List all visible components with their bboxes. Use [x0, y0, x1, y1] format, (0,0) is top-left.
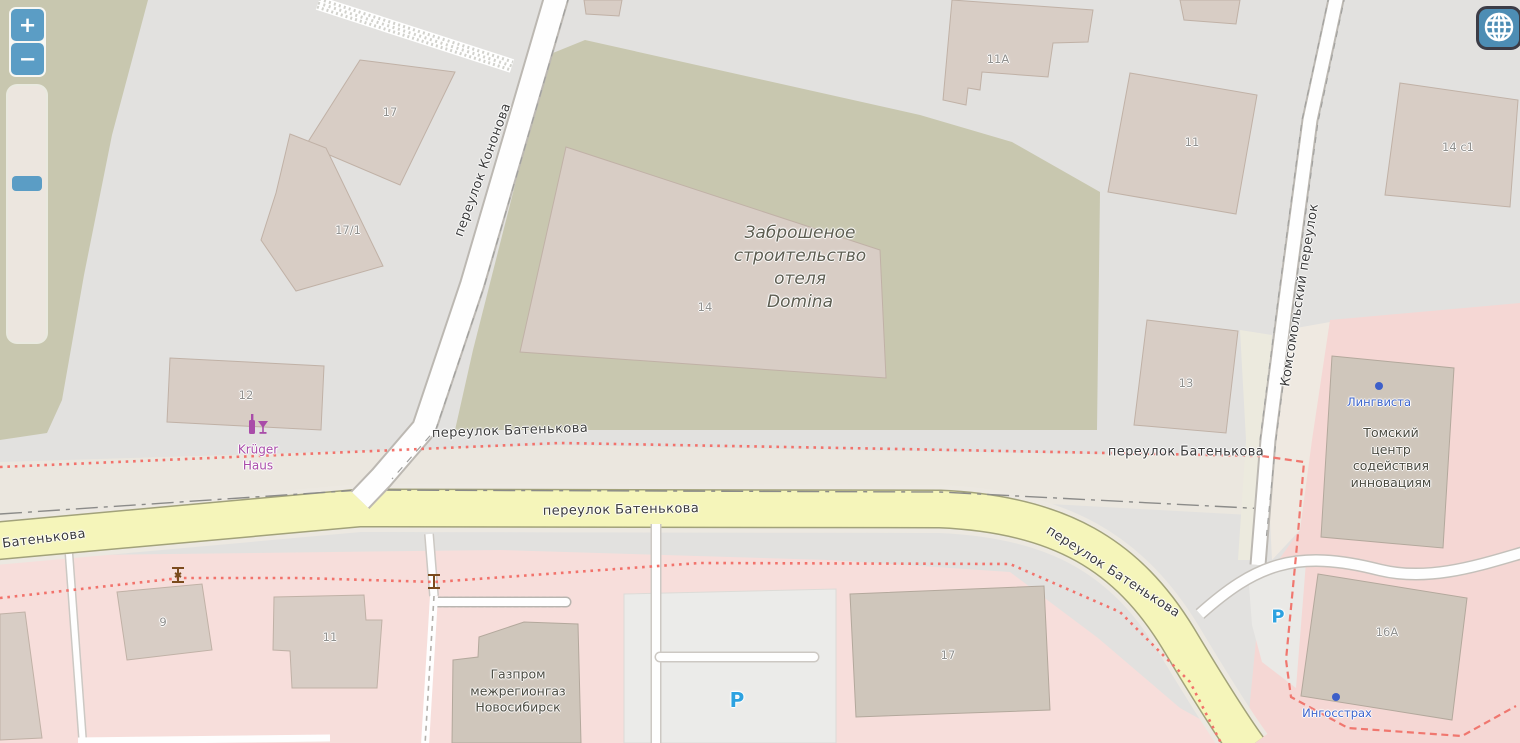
building-14c1 [1385, 83, 1518, 207]
building-11-top [1108, 73, 1257, 214]
building-13 [1134, 320, 1238, 433]
building-fragment-top2 [1180, 0, 1240, 24]
globe-icon [1481, 10, 1517, 44]
poi-dot-ingosstrakh [1332, 693, 1340, 701]
zoom-in-button[interactable]: + [11, 9, 44, 41]
building-9 [117, 584, 212, 660]
zoom-controls: + − [9, 7, 46, 77]
map-canvas[interactable]: переулок Кононова Комсомольский переулок… [0, 0, 1520, 743]
building-17-bottom [850, 586, 1050, 717]
building-fragment-top [584, 0, 622, 16]
zoom-out-button[interactable]: − [11, 43, 44, 75]
globe-button[interactable] [1476, 6, 1520, 50]
poi-dot-lingvista [1375, 382, 1383, 390]
map-geometry [0, 0, 1520, 743]
building-12 [167, 358, 324, 430]
building-16a [1301, 574, 1467, 720]
zoom-slider[interactable] [8, 86, 46, 342]
zoom-slider-handle[interactable] [12, 176, 42, 191]
building-tomsk-center [1321, 356, 1454, 548]
